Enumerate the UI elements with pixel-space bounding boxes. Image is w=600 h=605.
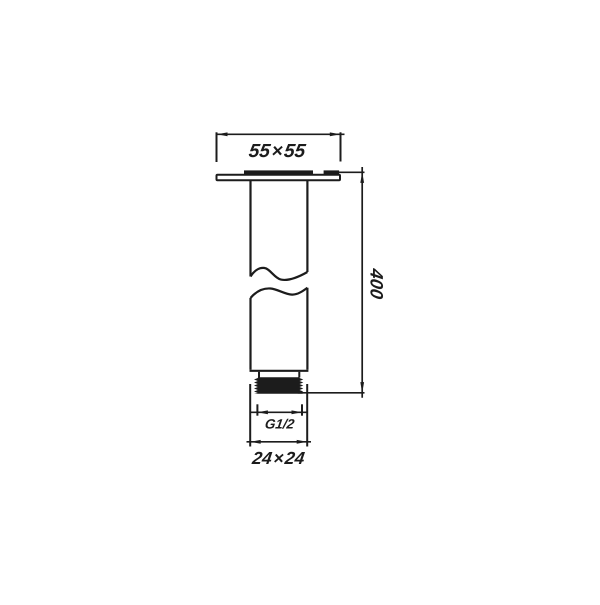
svg-text:400: 400 (367, 266, 387, 300)
svg-text:G1/2: G1/2 (264, 417, 296, 432)
svg-text:55×55: 55×55 (247, 141, 307, 162)
svg-text:24×24: 24×24 (250, 448, 306, 468)
